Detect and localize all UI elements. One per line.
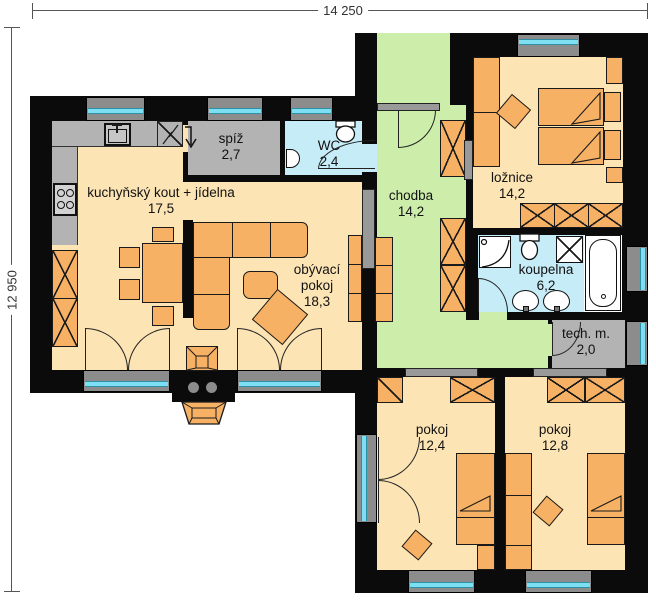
room-name: spíž xyxy=(219,131,244,147)
chimney-flue xyxy=(206,382,217,393)
bed-pillow-line xyxy=(588,517,624,518)
faucet-icon xyxy=(112,124,122,126)
shower xyxy=(479,236,511,268)
pantry-kitchen-wall xyxy=(183,152,188,175)
dining-table xyxy=(142,243,183,303)
sink-tap xyxy=(523,306,529,312)
pillow xyxy=(604,130,621,160)
room1-desk xyxy=(477,545,495,570)
room-label-room2: pokoj 12,8 xyxy=(539,422,571,454)
dining-chair xyxy=(119,279,140,300)
sofa xyxy=(193,222,308,258)
room2-wardrobe xyxy=(547,377,585,403)
window xyxy=(626,321,648,366)
room2-bed xyxy=(587,453,625,545)
room-label-living: obývací pokoj 18,3 xyxy=(282,262,352,310)
desk-division xyxy=(506,495,531,496)
room1-wardrobe xyxy=(450,377,495,403)
room-label-hall: chodba 14,2 xyxy=(389,188,433,220)
double-bed-mattress xyxy=(538,127,604,165)
dining-chair xyxy=(152,227,174,242)
cooktop-burner xyxy=(66,189,74,197)
washing-machine xyxy=(556,236,583,263)
room-area: 2,7 xyxy=(219,147,244,163)
window xyxy=(207,97,263,121)
fireplace xyxy=(186,346,218,371)
dining-chair xyxy=(119,247,140,268)
dimension-tick xyxy=(32,3,33,19)
room-label-kitchen: kuchyňský kout + jídelna 17,5 xyxy=(87,185,234,217)
sliding-door-room2 xyxy=(533,368,607,377)
room-label-pantry: spíž 2,7 xyxy=(219,131,244,163)
hall-closet xyxy=(440,265,466,312)
hall-extension-floor xyxy=(466,320,548,368)
sofa-seat-line xyxy=(194,294,229,295)
pantry-wc-bottom-wall xyxy=(183,175,362,182)
window xyxy=(408,570,475,593)
bed-pillow-line xyxy=(457,517,494,518)
dimension-tick xyxy=(4,591,20,592)
window xyxy=(525,570,592,593)
room-name: kuchyňský kout + jídelna xyxy=(87,185,234,201)
room2-wardrobe xyxy=(585,377,625,403)
hall-closet xyxy=(440,120,466,177)
french-door-window xyxy=(237,370,322,392)
room-area: 14,2 xyxy=(389,204,433,220)
bathroom-door-opening xyxy=(479,312,507,320)
window xyxy=(290,97,333,121)
room-label-tech: tech. m. 2,0 xyxy=(562,326,610,358)
room-area: 18,3 xyxy=(282,294,352,310)
room-area: 12,8 xyxy=(539,438,571,454)
hall-closet xyxy=(440,218,466,265)
outdoor-canopy xyxy=(182,402,226,424)
room-area: 2,0 xyxy=(562,342,610,358)
room-name: koupelna xyxy=(519,262,574,278)
room-area: 17,5 xyxy=(87,201,234,217)
window xyxy=(626,246,648,292)
room-area: 6,2 xyxy=(519,278,574,294)
sliding-door-room1 xyxy=(405,368,478,377)
shelf-division xyxy=(376,265,392,266)
shelf-division xyxy=(376,293,392,294)
chimney-block xyxy=(172,371,235,402)
nightstand xyxy=(606,167,623,183)
pillow xyxy=(604,92,621,122)
room2-desk xyxy=(505,453,532,570)
bedroom-wardrobe xyxy=(554,203,589,228)
window xyxy=(517,34,580,57)
sliding-door-bedroom xyxy=(464,140,473,180)
room-name: pokoj xyxy=(416,422,448,438)
dining-chair xyxy=(152,306,174,326)
window xyxy=(86,97,145,121)
room-name: chodba xyxy=(389,188,433,204)
room-name: WC xyxy=(318,138,341,154)
pantry-kitchen-wall xyxy=(183,121,188,125)
wardrobe xyxy=(52,250,78,299)
sliding-door-living xyxy=(362,189,375,269)
floor-plan-canvas: 14 250 12 950 xyxy=(0,0,656,600)
french-door-window xyxy=(83,370,170,392)
room-label-bedroom: ložnice 14,2 xyxy=(491,170,533,202)
pantry-wc-wall xyxy=(280,121,285,175)
entry-porch-floor xyxy=(377,33,450,105)
sofa-seat-line xyxy=(232,223,233,257)
bathtub-drain xyxy=(601,294,606,299)
room1-bed xyxy=(456,453,495,545)
room-area: 12,4 xyxy=(416,438,448,454)
dimension-height-label: 12 950 xyxy=(5,265,20,315)
room-area: 14,2 xyxy=(491,186,533,202)
dimension-tick xyxy=(4,27,20,28)
dimension-tick xyxy=(647,3,648,19)
cooktop xyxy=(53,183,77,216)
fridge-symbol xyxy=(157,121,183,147)
room-name: pokoj xyxy=(539,422,571,438)
cooktop-burner xyxy=(57,189,65,197)
wardrobe xyxy=(52,298,78,347)
room-name: tech. m. xyxy=(562,326,610,342)
chimney-flue xyxy=(188,382,199,393)
room-name: ložnice xyxy=(491,170,533,186)
cooktop-burner xyxy=(57,201,65,209)
dimension-width-label: 14 250 xyxy=(318,3,368,18)
bedroom-wardrobe xyxy=(588,203,623,228)
sink-tap xyxy=(554,306,560,312)
room-area: 2,4 xyxy=(318,154,341,170)
room-name: obývací pokoj xyxy=(282,262,352,294)
hall-shelf xyxy=(375,237,393,322)
desk-division xyxy=(506,545,531,546)
sofa-seat-line xyxy=(270,223,271,257)
kitchen-living-partition xyxy=(183,220,193,318)
nightstand xyxy=(606,57,623,84)
french-door-window xyxy=(356,434,377,523)
room1-wardrobe xyxy=(377,377,403,403)
double-bed-mattress xyxy=(538,88,604,126)
cooktop-burner xyxy=(66,201,74,209)
room-label-bath: koupelna 6,2 xyxy=(519,262,574,294)
room-label-wc: WC 2,4 xyxy=(318,138,341,170)
room-label-room1: pokoj 12,4 xyxy=(416,422,448,454)
bedroom-wardrobe xyxy=(520,203,555,228)
